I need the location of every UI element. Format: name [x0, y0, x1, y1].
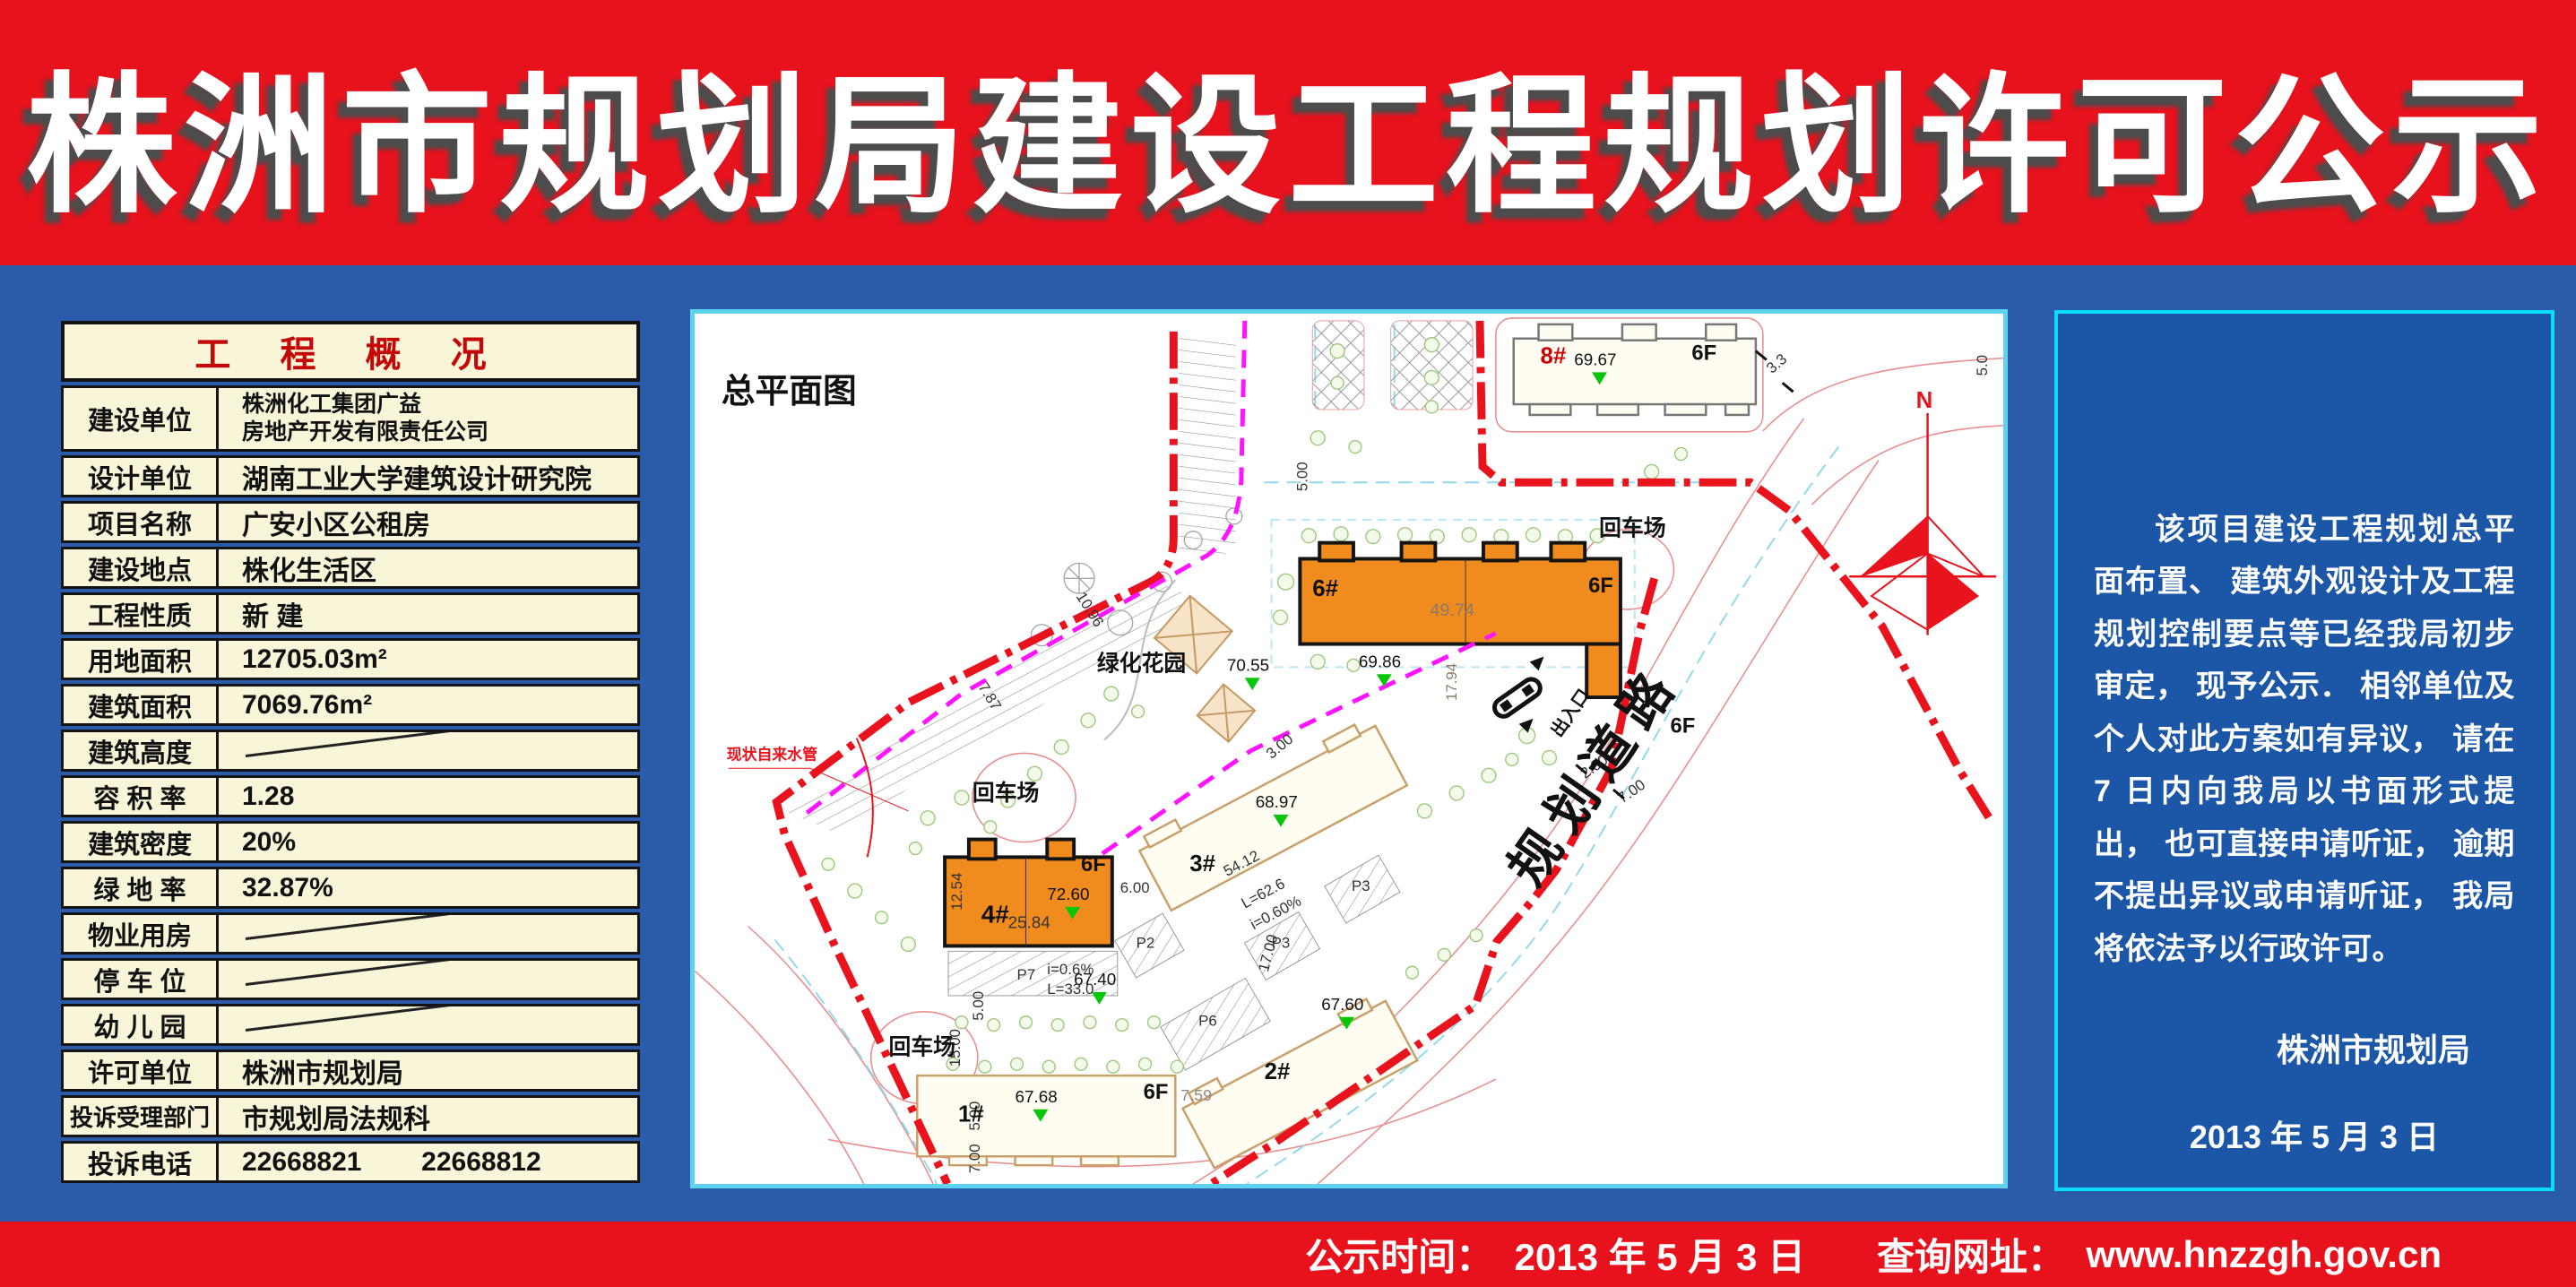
table-row: 幼 儿 园 — [61, 1004, 640, 1046]
svg-text:72.60: 72.60 — [1047, 885, 1089, 903]
plan-title: 总平面图 — [722, 372, 857, 410]
svg-text:17.94: 17.94 — [1443, 663, 1460, 701]
svg-text:P6: P6 — [1198, 1013, 1217, 1030]
notice-signature: 株洲市规划局 — [2094, 1024, 2515, 1071]
row-value: 22668821 22668812 — [219, 1144, 637, 1180]
north-label: N — [1916, 388, 1933, 413]
row-value: 新 建 — [219, 595, 637, 632]
svg-text:67.68: 67.68 — [1016, 1087, 1058, 1106]
empty-slash — [246, 961, 513, 986]
row-value-empty — [219, 1006, 637, 1043]
building-1-label: 1# — [958, 1102, 984, 1127]
empty-slash — [246, 732, 513, 757]
row-label: 用地面积 — [64, 641, 219, 678]
water-pipe-label: 现状自来水管 — [727, 745, 817, 763]
floor-label-8: 6F — [1691, 341, 1716, 366]
table-row: 工程性质 新 建 — [61, 592, 640, 635]
building-3-label: 3# — [1189, 851, 1215, 877]
row-label: 物业用房 — [64, 915, 219, 952]
table-row: 投诉受理部门 市规划局法规科 — [61, 1095, 640, 1137]
empty-slash — [246, 1006, 513, 1032]
floor-label-3: 6F — [1671, 714, 1696, 739]
svg-text:5.00: 5.00 — [1293, 462, 1310, 491]
row-value: 湖南工业大学建筑设计研究院 — [219, 458, 637, 495]
row-value: 广安小区公租房 — [219, 504, 637, 540]
floor-label-4: 6F — [1081, 852, 1106, 877]
building-4-label: 4# — [981, 901, 1009, 929]
svg-text:7.00: 7.00 — [966, 1144, 983, 1173]
row-value-empty — [219, 961, 637, 998]
row-value: 株洲市规划局 — [219, 1052, 637, 1089]
parking-hatches — [783, 321, 1473, 1070]
row-value: 12705.03m² — [219, 641, 637, 678]
website-label: 查询网址： — [1877, 1227, 2086, 1282]
svg-text:12.54: 12.54 — [948, 873, 965, 911]
row-label: 绿 地 率 — [64, 869, 219, 906]
table-row: 容 积 率 1.28 — [61, 775, 640, 817]
floor-label-1: 6F — [1144, 1080, 1169, 1104]
project-overview-table: 工 程 概 况 建设单位 株洲化工集团广益 房地产开发有限责任公司 设计单位 湖… — [61, 321, 640, 1183]
svg-text:25.84: 25.84 — [1008, 913, 1050, 932]
site-plan-panel: N 69.67 70.55 69.86 68.97 72.60 67.40 67… — [690, 309, 2008, 1188]
row-value: 32.87% — [219, 869, 637, 906]
row-label: 投诉电话 — [64, 1144, 219, 1180]
row-label: 容 积 率 — [64, 778, 219, 815]
turnaround-label-3: 回车场 — [889, 1033, 955, 1059]
svg-text:P3: P3 — [1352, 877, 1370, 894]
svg-text:70.55: 70.55 — [1227, 655, 1269, 674]
row-value-line2: 房地产开发有限责任公司 — [242, 419, 488, 446]
garden-label: 绿化花园 — [1097, 650, 1186, 676]
svg-text:67.60: 67.60 — [1321, 995, 1363, 1014]
website-value: www.hnzzgh.gov.cn — [2086, 1233, 2442, 1276]
table-row: 绿 地 率 32.87% — [61, 867, 640, 909]
row-label: 停 车 位 — [64, 961, 219, 998]
table-row: 停 车 位 — [61, 958, 640, 1000]
row-label: 设计单位 — [64, 458, 219, 495]
row-label: 工程性质 — [64, 595, 219, 632]
table-rows: 建设单位 株洲化工集团广益 房地产开发有限责任公司 设计单位 湖南工业大学建筑设… — [61, 385, 640, 1183]
row-value: 20% — [219, 824, 637, 860]
row-label: 建设地点 — [64, 549, 219, 586]
row-value: 市规划局法规科 — [219, 1098, 637, 1135]
north-arrow — [1849, 413, 1996, 635]
row-label: 建筑面积 — [64, 687, 219, 723]
notice-paragraph: 该项目建设工程规划总平面布置、 建筑外观设计及工程规划控制要点等已经我局初步审定… — [2094, 504, 2515, 975]
svg-text:5.00: 5.00 — [970, 991, 987, 1021]
building-8-label: 8# — [1541, 344, 1567, 369]
row-value: 株洲化工集团广益 房地产开发有限责任公司 — [219, 388, 637, 449]
site-plan-drawing: N 69.67 70.55 69.86 68.97 72.60 67.40 67… — [695, 314, 2003, 1184]
svg-text:69.86: 69.86 — [1359, 652, 1401, 670]
empty-slash — [246, 915, 513, 940]
row-value: 7069.76m² — [219, 687, 637, 723]
svg-text:i=0.6%: i=0.6% — [1047, 961, 1094, 978]
svg-text:49.74: 49.74 — [1430, 600, 1474, 620]
row-label: 建筑密度 — [64, 824, 219, 860]
building-6-label: 6# — [1312, 576, 1338, 601]
table-row: 建设地点 株化生活区 — [61, 547, 640, 589]
svg-text:P2: P2 — [1137, 934, 1155, 951]
row-label: 建设单位 — [64, 388, 219, 449]
svg-text:L=33.0: L=33.0 — [1047, 980, 1094, 998]
table-row: 投诉电话 22668821 22668812 — [61, 1141, 640, 1183]
table-row: 物业用房 — [61, 912, 640, 954]
svg-text:7.59: 7.59 — [1180, 1086, 1212, 1104]
row-label: 项目名称 — [64, 504, 219, 540]
page-title: 株洲市规划局建设工程规划许可公示 — [26, 24, 2550, 242]
svg-text:3.00: 3.00 — [1263, 730, 1296, 763]
table-row: 用地面积 12705.03m² — [61, 638, 640, 680]
publish-time-value: 2013 年 5 月 3 日 — [1515, 1227, 1806, 1282]
svg-text:P3: P3 — [1272, 934, 1291, 951]
row-value-line1: 株洲化工集团广益 — [242, 391, 421, 419]
notice-panel: 该项目建设工程规划总平面布置、 建筑外观设计及工程规划控制要点等已经我局初步审定… — [2054, 310, 2554, 1191]
table-row: 建筑面积 7069.76m² — [61, 684, 640, 726]
dimension-texts: 5.00 3.3 5.0 49.74 17.94 12.54 25.84 6.0… — [947, 350, 1991, 1173]
table-row: 项目名称 广安小区公租房 — [61, 501, 640, 543]
header-banner: 株洲市规划局建设工程规划许可公示 — [0, 0, 2576, 265]
turnaround-label-1: 回车场 — [1599, 515, 1665, 541]
svg-text:3.3: 3.3 — [1763, 350, 1790, 377]
table-row: 许可单位 株洲市规划局 — [61, 1049, 640, 1092]
notice-date: 2013 年 5 月 3 日 — [2094, 1111, 2515, 1158]
table-row: 设计单位 湖南工业大学建筑设计研究院 — [61, 455, 640, 497]
publish-time-label: 公示时间： — [1305, 1227, 1514, 1282]
svg-text:68.97: 68.97 — [1256, 792, 1298, 811]
row-value-empty — [219, 915, 637, 952]
svg-text:P7: P7 — [1017, 966, 1036, 983]
row-value: 株化生活区 — [219, 549, 637, 586]
table-row: 建筑高度 — [61, 730, 640, 772]
row-value: 1.28 — [219, 778, 637, 815]
row-label: 许可单位 — [64, 1052, 219, 1089]
entrance-label: 出入口 — [1547, 686, 1595, 741]
row-label: 建筑高度 — [64, 732, 219, 769]
turnaround-label-2: 回车场 — [972, 780, 1039, 806]
building-2-label: 2# — [1265, 1059, 1291, 1084]
table-title: 工 程 概 况 — [61, 321, 640, 382]
table-row: 建筑密度 20% — [61, 821, 640, 863]
row-label: 投诉受理部门 — [64, 1098, 219, 1135]
footer-banner: 公示时间： 2013 年 5 月 3 日 查询网址： www.hnzzgh.go… — [0, 1222, 2576, 1287]
floor-label-6: 6F — [1588, 574, 1613, 598]
building-8 — [1514, 324, 1756, 415]
table-row: 建设单位 株洲化工集团广益 房地产开发有限责任公司 — [61, 385, 640, 452]
row-label: 幼 儿 园 — [64, 1006, 219, 1043]
svg-text:69.67: 69.67 — [1574, 350, 1616, 368]
svg-text:5.0: 5.0 — [1974, 355, 1991, 376]
row-value-empty — [219, 732, 637, 769]
svg-text:6.00: 6.00 — [1120, 879, 1150, 896]
